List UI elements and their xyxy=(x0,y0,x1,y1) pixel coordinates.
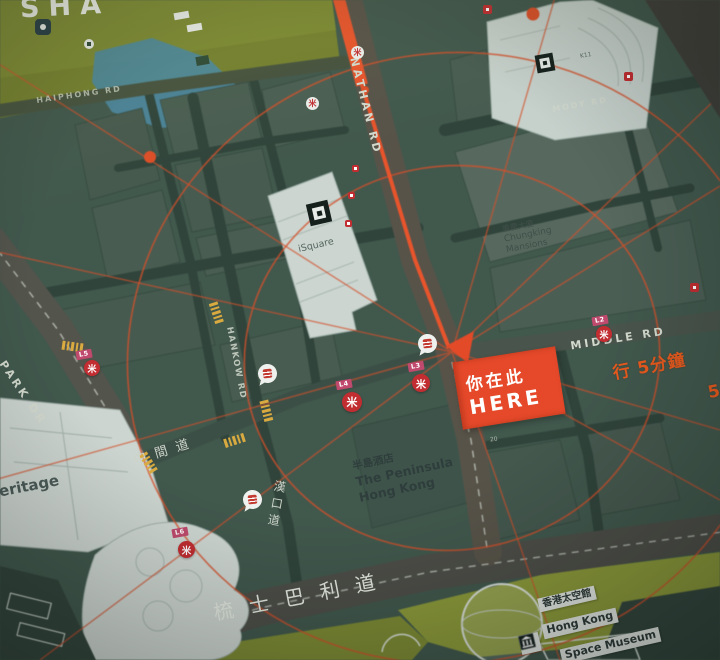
park-facility-icon xyxy=(35,19,51,35)
mtr-logo-glyph: 米 xyxy=(416,376,426,391)
map-base xyxy=(0,0,720,660)
mtr-logo-glyph: 米 xyxy=(347,394,358,410)
poi-marker-red xyxy=(690,283,699,292)
poi-marker-red xyxy=(348,192,355,199)
route-node xyxy=(361,86,369,94)
mtr-station-icon: 米 xyxy=(306,97,319,110)
bus-stop-icon xyxy=(248,495,258,505)
route-node xyxy=(527,8,540,21)
mtr-station-icon: 米 xyxy=(351,46,364,59)
mtr-exit-icon-l2: 米 xyxy=(596,326,612,342)
mtr-logo-glyph: 米 xyxy=(87,362,96,375)
poi-marker-red xyxy=(352,165,359,172)
mtr-logo-glyph: 米 xyxy=(354,47,362,58)
park-facility-icon xyxy=(84,39,94,49)
k11-building-icon xyxy=(535,53,556,74)
k11-building xyxy=(487,0,658,140)
bus-stop-icon xyxy=(263,369,273,379)
fountain-icon xyxy=(40,24,46,30)
printed-street-map-photo: SHA HAIPHONG RD NATHAN RD MODY RD MIDDLE… xyxy=(0,0,720,660)
mtr-exit-icon-l4: 米 xyxy=(342,392,362,412)
poi-marker-red xyxy=(345,220,352,227)
mtr-exit-icon-l5: 米 xyxy=(84,360,100,376)
mtr-exit-icon-l3: 米 xyxy=(412,374,430,392)
park-dot-icon xyxy=(87,42,91,46)
mtr-exit-icon-l6: 米 xyxy=(178,541,195,558)
poi-marker-red xyxy=(624,72,633,81)
route-node xyxy=(144,151,156,163)
poi-marker-red xyxy=(483,5,492,14)
mtr-logo-glyph: 米 xyxy=(182,543,192,557)
mtr-logo-glyph: 米 xyxy=(599,328,608,341)
mtr-logo-glyph: 米 xyxy=(309,98,317,109)
bus-stop-icon xyxy=(423,339,433,349)
